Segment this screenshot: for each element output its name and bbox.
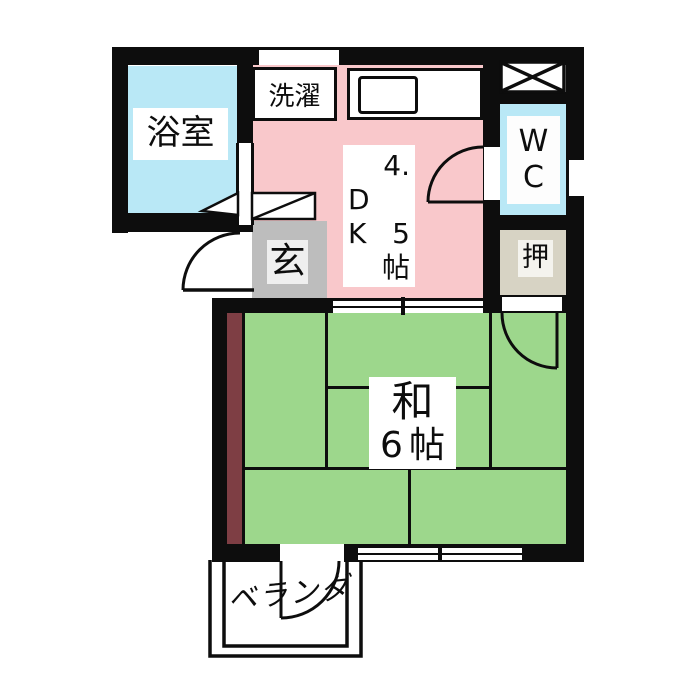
dk-label: 4. D K 5 帖 (343, 145, 415, 287)
oshiire-label-text: 押 (522, 244, 549, 272)
wc-label-line2: C (523, 160, 544, 196)
washitsu-label-line1: 和 (391, 379, 433, 425)
genkan-label: 玄 (267, 240, 308, 284)
veranda-label-text: ベランダ (228, 571, 356, 615)
washitsu-label: 和 6帖 (369, 377, 456, 469)
dk-label-line3: K 5 (348, 217, 410, 251)
wc-label-line1: W (519, 124, 549, 160)
dk-label-line1: 4. (348, 149, 410, 183)
shaft-x-box (501, 62, 564, 92)
wc-label: W C (507, 116, 560, 204)
entrance-door-arc (183, 233, 254, 290)
bathroom-label: 浴室 (133, 108, 228, 160)
wc-area: W C (500, 104, 566, 215)
floor-plan: 洗濯 (0, 0, 700, 700)
washitsu-door-arc (502, 313, 557, 368)
dk-label-line4: 帖 (348, 251, 410, 285)
dk-label-line2: D (348, 183, 410, 217)
veranda-label: ベランダ (222, 573, 362, 613)
bathroom-door-symbol (202, 193, 315, 219)
washitsu-label-line2: 6帖 (374, 425, 451, 467)
oshiire-label: 押 (518, 240, 553, 277)
bathroom-label-text: 浴室 (147, 116, 215, 152)
genkan-label-text: 玄 (269, 243, 305, 281)
wc-door-arc (428, 147, 483, 202)
